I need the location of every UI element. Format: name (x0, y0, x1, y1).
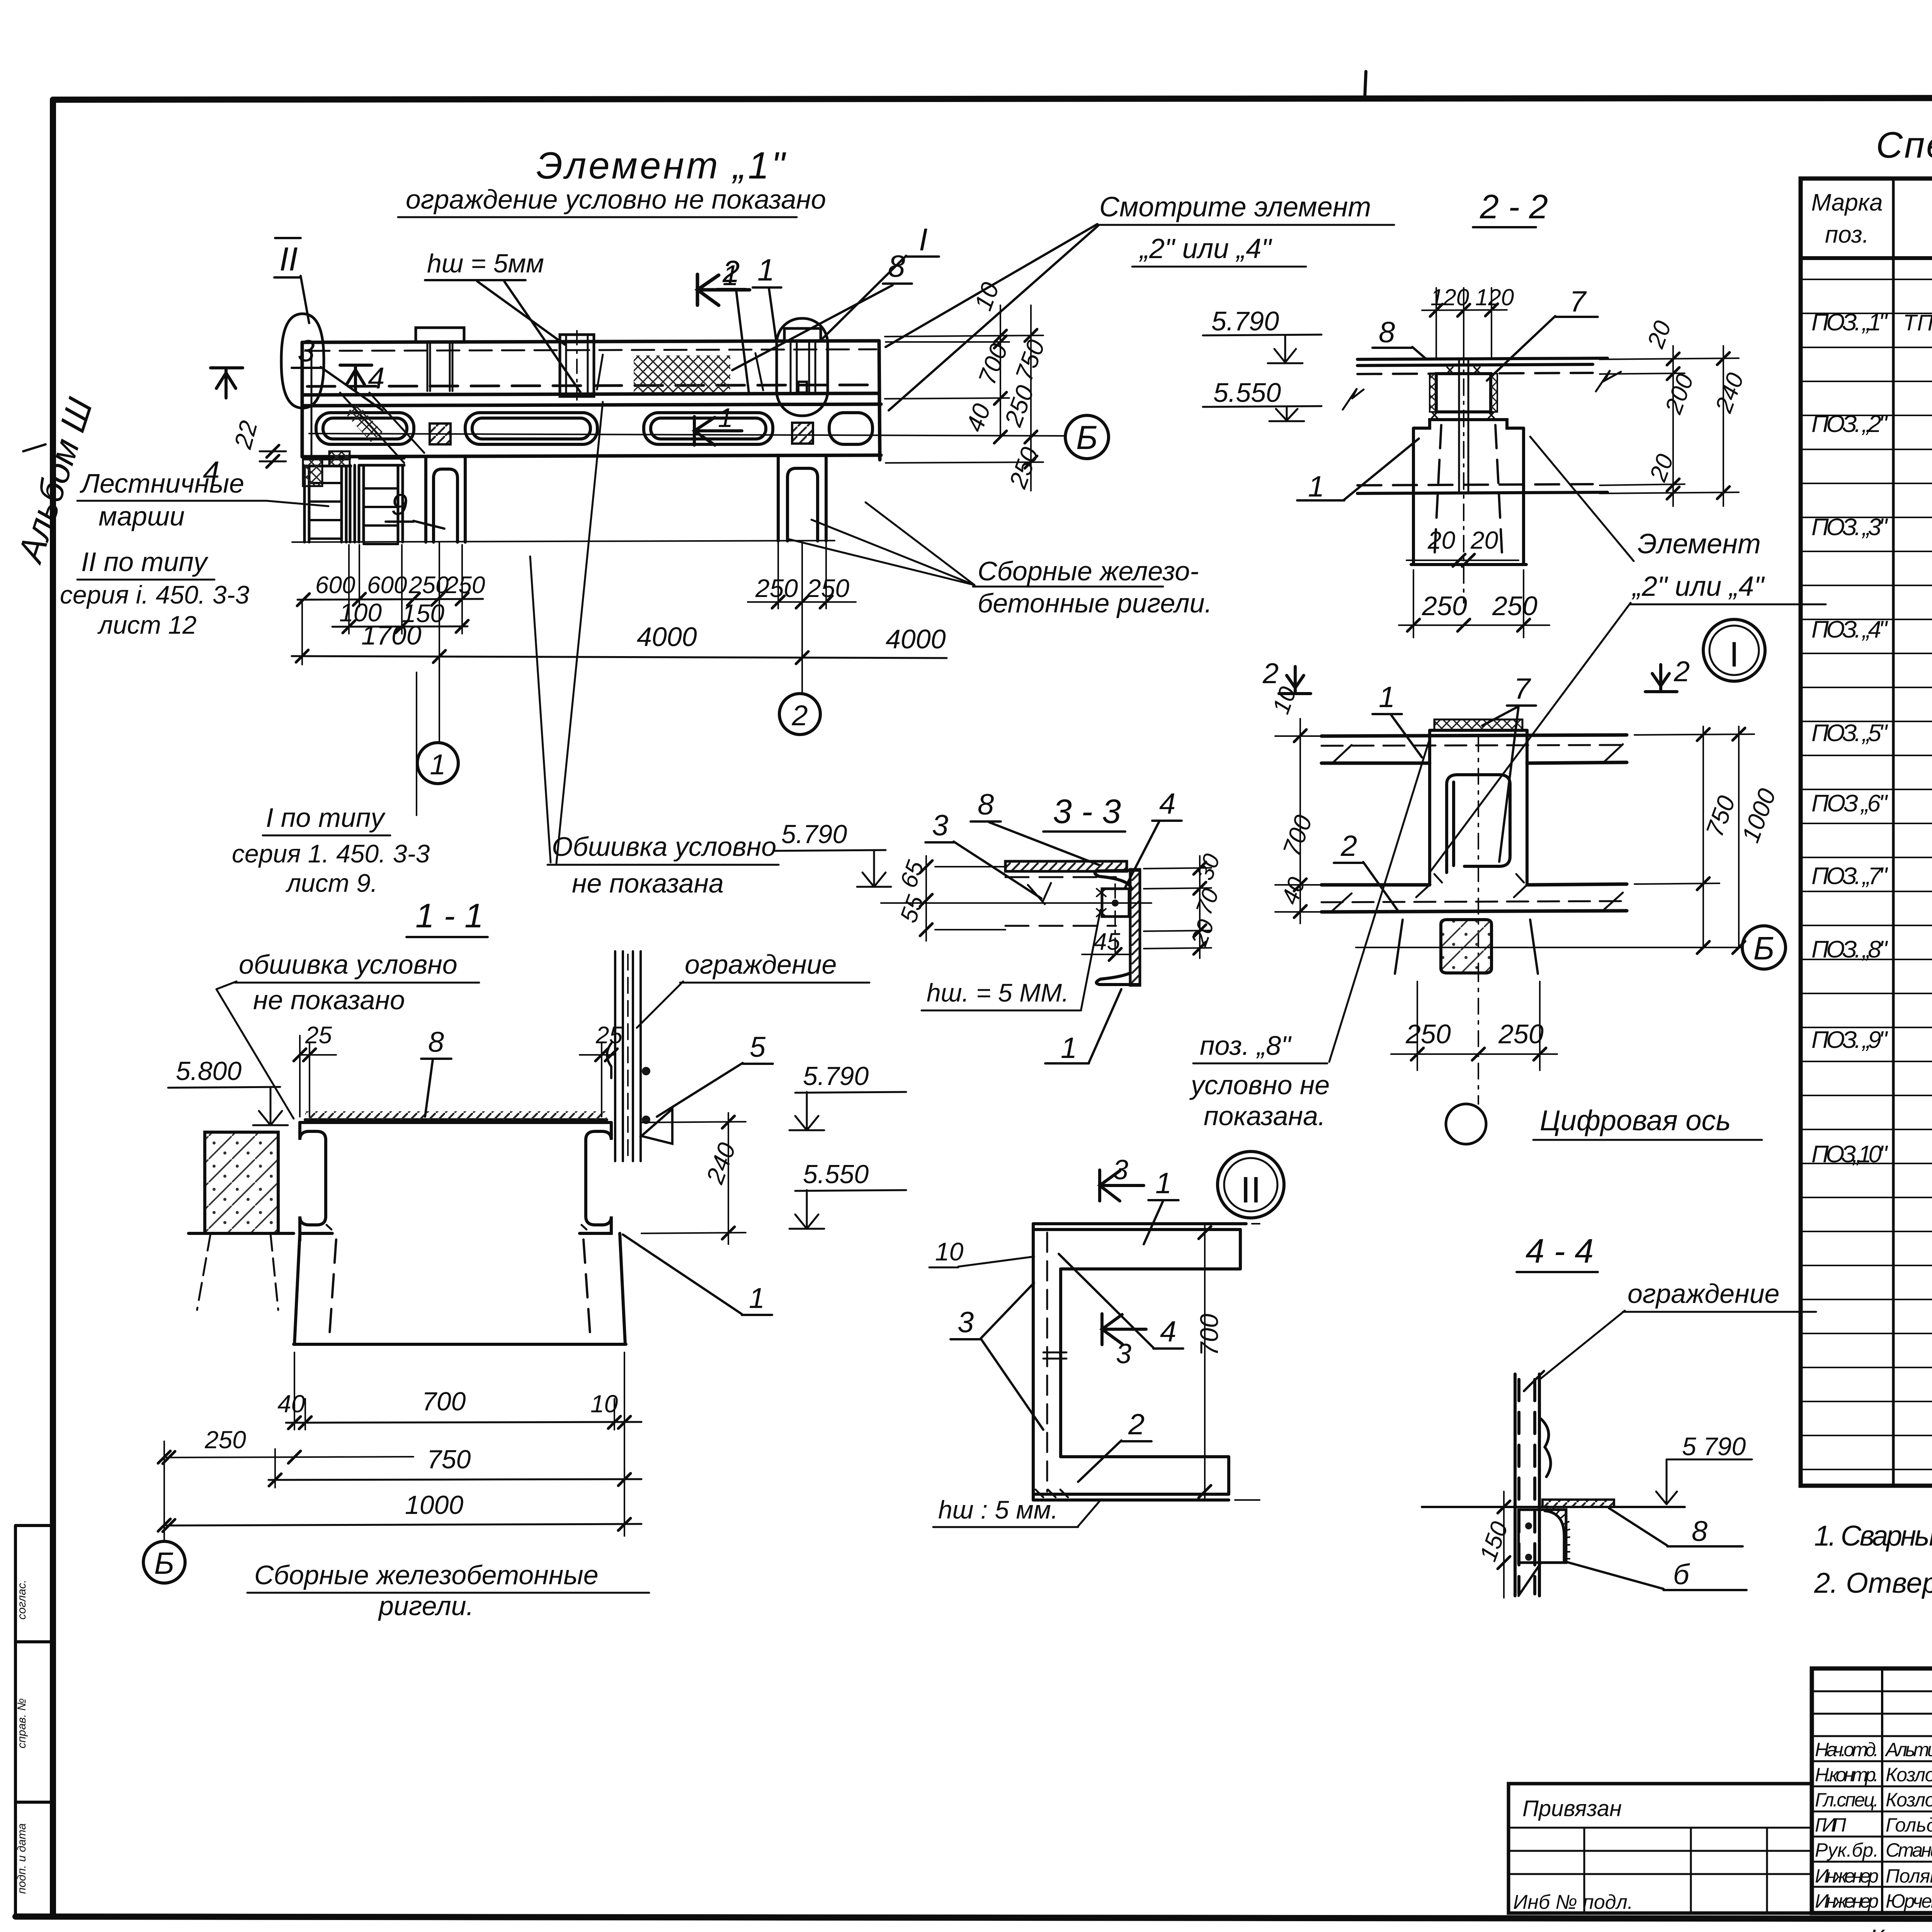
svg-text:показана.: показана. (1204, 1101, 1325, 1131)
svg-text:Сборные железобетонные: Сборные железобетонные (254, 1560, 599, 1590)
svg-text:II: II (279, 241, 298, 278)
svg-text:лист 9.: лист 9. (285, 869, 378, 897)
svg-text:марши: марши (99, 501, 185, 531)
svg-text:7: 7 (1570, 285, 1587, 318)
svg-text:Станина: Станина (1886, 1839, 1932, 1861)
svg-text:справ. №: справ. № (15, 1698, 28, 1748)
svg-text:Б: Б (1753, 930, 1775, 966)
svg-text:hш = 5мм: hш = 5мм (427, 249, 544, 278)
svg-text:Юрченко: Юрченко (1886, 1890, 1932, 1912)
svg-text:ПОЗ. „8": ПОЗ. „8" (1811, 936, 1888, 963)
svg-text:2: 2 (1340, 830, 1357, 862)
svg-text:лист 12: лист 12 (97, 611, 197, 639)
svg-text:поз.: поз. (1825, 221, 1869, 248)
svg-text:700: 700 (1195, 1314, 1223, 1356)
svg-text:„2" или „4": „2" или „4" (1631, 571, 1765, 602)
svg-text:Обшивка условно: Обшивка условно (552, 832, 776, 862)
svg-text:ограждение: ограждение (1628, 1279, 1779, 1309)
svg-text:20: 20 (1470, 526, 1498, 554)
svg-text:Элемент „1": Элемент „1" (536, 144, 787, 187)
svg-text:4000: 4000 (886, 624, 946, 654)
svg-text:700: 700 (422, 1387, 466, 1416)
svg-text:Рук.бр.: Рук.бр. (1815, 1839, 1879, 1861)
svg-text:ПОЗ. „1": ПОЗ. „1" (1811, 309, 1888, 336)
svg-text:бетонные ригели.: бетонные ригели. (978, 588, 1212, 618)
svg-text:обшивка условно: обшивка условно (239, 949, 457, 980)
svg-text:4: 4 (1159, 787, 1175, 820)
svg-text:II: II (1240, 1169, 1261, 1211)
svg-text:Спецификация к элементу: Спецификация к элементу „1" (1876, 124, 1932, 166)
svg-text:250: 250 (1422, 591, 1467, 621)
svg-text:ПОЗ. „2": ПОЗ. „2" (1811, 411, 1888, 437)
svg-text:600: 600 (367, 572, 407, 599)
svg-text:Н.контр.: Н.контр. (1815, 1764, 1879, 1786)
svg-text:20: 20 (1427, 526, 1456, 554)
svg-text:Сборные железо-: Сборные железо- (978, 556, 1199, 586)
svg-text:I: I (1729, 635, 1739, 674)
svg-text:4 - 4: 4 - 4 (1526, 1232, 1594, 1270)
svg-text:5.790: 5.790 (803, 1061, 869, 1091)
svg-text:Козловичер: Козловичер (1886, 1764, 1932, 1786)
svg-text:7: 7 (1514, 672, 1531, 705)
svg-text:Привязан: Привязан (1522, 1796, 1622, 1821)
svg-text:1: 1 (430, 748, 446, 781)
svg-text:ПОЗ. „3": ПОЗ. „3" (1811, 514, 1888, 541)
svg-text:Инб № подл.: Инб № подл. (1513, 1891, 1633, 1913)
svg-text:Б: Б (1076, 419, 1098, 456)
svg-text:5.800: 5.800 (176, 1056, 241, 1086)
svg-text:3: 3 (1116, 1338, 1131, 1369)
svg-text:5.790: 5.790 (1211, 306, 1279, 336)
svg-text:Инженер: Инженер (1815, 1865, 1879, 1887)
svg-text:1700: 1700 (361, 620, 422, 650)
svg-text:1: 1 (718, 403, 733, 433)
svg-text:ТП901-6-81.86 - АС 14: ТП901-6-81.86 - АС 14 (1903, 310, 1932, 335)
svg-text:250: 250 (204, 1426, 246, 1454)
svg-text:Б: Б (154, 1546, 174, 1580)
svg-text:Марка: Марка (1811, 189, 1883, 216)
svg-text:1: 1 (757, 253, 775, 287)
svg-text:250: 250 (1498, 1019, 1544, 1049)
svg-text:ПОЗ „6": ПОЗ „6" (1811, 790, 1888, 817)
svg-text:250: 250 (806, 574, 849, 602)
svg-text:ПОЗ. „9": ПОЗ. „9" (1811, 1027, 1888, 1053)
svg-text:hш : 5 мм.: hш : 5 мм. (938, 1495, 1058, 1524)
svg-text:б: б (1673, 1558, 1690, 1590)
svg-text:ПОЗ. „7": ПОЗ. „7" (1811, 863, 1888, 889)
svg-text:250: 250 (1492, 591, 1537, 621)
svg-text:4000: 4000 (637, 622, 697, 652)
svg-text:1 - 1: 1 - 1 (415, 896, 483, 935)
svg-text:ПОЗ. „4": ПОЗ. „4" (1811, 616, 1888, 643)
svg-text:3: 3 (957, 1306, 974, 1339)
svg-text:I по типу: I по типу (266, 803, 386, 833)
svg-text:4: 4 (1160, 1315, 1176, 1348)
svg-text:9: 9 (391, 487, 408, 521)
svg-text:5.550: 5.550 (803, 1160, 869, 1189)
svg-text:750: 750 (427, 1445, 471, 1474)
svg-text:2: 2 (1673, 655, 1690, 687)
svg-text:8: 8 (978, 788, 994, 821)
svg-text:Смотрите элемент: Смотрите элемент (1099, 192, 1371, 223)
svg-text:Гл.спец.: Гл.спец. (1815, 1789, 1879, 1811)
svg-text:II по типу: II по типу (81, 547, 209, 577)
svg-text:5: 5 (750, 1031, 766, 1063)
svg-text:2: 2 (791, 699, 808, 731)
svg-text:подп. и дата: подп. и дата (15, 1823, 28, 1894)
svg-text:1: 1 (723, 259, 738, 291)
svg-text:Козловичер: Козловичер (1886, 1789, 1932, 1811)
svg-text:ограждение условно не показано: ограждение условно не показано (406, 184, 826, 214)
svg-text:Гольдина: Гольдина (1886, 1814, 1932, 1836)
svg-text:2. Отверстия d = 14 мм .: 2. Отверстия d = 14 мм . (1814, 1567, 1932, 1599)
svg-text:3: 3 (932, 809, 948, 842)
svg-text:3 - 3: 3 - 3 (1053, 792, 1121, 830)
svg-text:4: 4 (368, 361, 384, 395)
svg-text:I: I (919, 222, 928, 257)
svg-text:5.790: 5.790 (781, 820, 847, 849)
svg-text:3: 3 (298, 333, 315, 368)
svg-text:hш. = 5 ММ.: hш. = 5 ММ. (927, 978, 1069, 1007)
svg-text:45: 45 (1094, 929, 1120, 955)
svg-text:Лестничные: Лестничные (80, 468, 244, 498)
svg-text:8: 8 (428, 1026, 444, 1058)
svg-text:25: 25 (595, 1022, 622, 1049)
svg-text:3: 3 (1113, 1155, 1128, 1185)
svg-text:1000: 1000 (405, 1490, 463, 1520)
svg-text:не показана: не показана (572, 868, 724, 898)
svg-text:серия i. 450. 3-3: серия i. 450. 3-3 (60, 580, 250, 609)
svg-text:Копировал : Доценко.: Копировал : Доценко. (1869, 1924, 1932, 1932)
svg-text:Альтшуллер: Альтшуллер (1884, 1739, 1932, 1760)
svg-text:соглас.: соглас. (15, 1580, 28, 1619)
svg-text:1: 1 (1308, 470, 1324, 503)
svg-text:1: 1 (749, 1282, 765, 1314)
svg-text:1: 1 (1379, 681, 1395, 714)
svg-text:поз. „8": поз. „8" (1200, 1031, 1292, 1061)
svg-text:ГИП: ГИП (1815, 1814, 1847, 1836)
svg-text:ПОЗ. „5": ПОЗ. „5" (1811, 720, 1888, 747)
svg-text:5 790: 5 790 (1682, 1432, 1746, 1461)
svg-text:„2" или „4": „2" или „4" (1139, 233, 1272, 264)
svg-text:не показано: не показано (253, 985, 405, 1015)
svg-text:1. Сварные швы, кроме огово: 1. Сварные швы, кроме оговоренных приним… (1814, 1520, 1932, 1552)
svg-text:250: 250 (755, 574, 798, 602)
svg-text:Цифровая ось: Цифровая ось (1540, 1104, 1731, 1136)
svg-text:1: 1 (1061, 1032, 1077, 1065)
svg-text:ригели.: ригели. (378, 1591, 474, 1621)
svg-text:Полякова: Полякова (1886, 1865, 1932, 1887)
svg-text:ПОЗ„10": ПОЗ„10" (1811, 1141, 1888, 1168)
svg-text:40: 40 (277, 1390, 305, 1418)
svg-text:условно не: условно не (1189, 1070, 1330, 1100)
svg-text:2: 2 (1128, 1408, 1145, 1441)
svg-text:Элемент: Элемент (1638, 529, 1761, 560)
svg-text:Нач.отд.: Нач.отд. (1815, 1739, 1879, 1760)
svg-text:8: 8 (1379, 316, 1395, 349)
svg-text:ограждение: ограждение (685, 949, 837, 980)
svg-text:8: 8 (1692, 1515, 1708, 1547)
svg-text:Инженер: Инженер (1815, 1890, 1879, 1912)
svg-text:5.550: 5.550 (1213, 378, 1281, 408)
svg-text:2 - 2: 2 - 2 (1480, 187, 1548, 226)
svg-text:серия 1. 450. 3-3: серия 1. 450. 3-3 (232, 839, 430, 868)
svg-text:250: 250 (1405, 1019, 1451, 1049)
svg-text:10: 10 (935, 1237, 964, 1266)
svg-text:1: 1 (1155, 1167, 1172, 1200)
